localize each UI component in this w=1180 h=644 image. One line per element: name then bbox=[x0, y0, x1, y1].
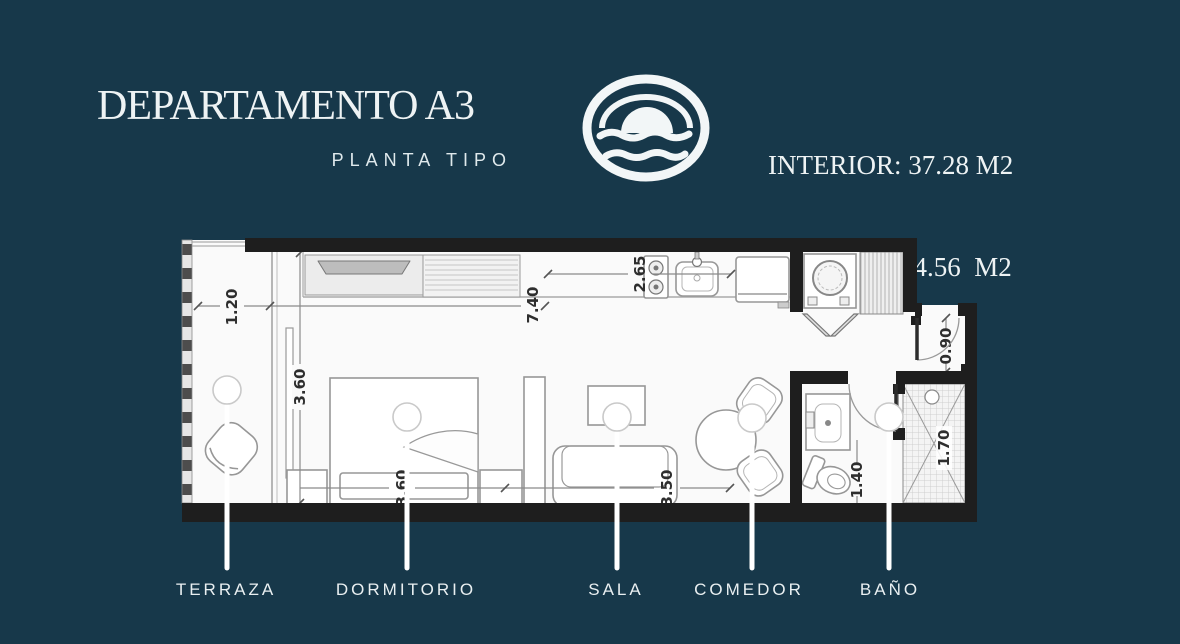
nightstand bbox=[480, 470, 522, 504]
room-label-comedor: COMEDOR bbox=[694, 580, 804, 600]
room-label-terraza: TERRAZA bbox=[176, 580, 276, 600]
room-label-sala: SALA bbox=[588, 580, 643, 600]
shelving bbox=[423, 255, 520, 297]
marker-comedor bbox=[738, 404, 766, 432]
bathroom-vanity bbox=[806, 394, 850, 450]
dim-bath-width: 1.40 bbox=[848, 461, 866, 498]
dim-shower-length: 1.70 bbox=[935, 429, 953, 466]
closet-shelf bbox=[318, 261, 410, 274]
dim-entry-door: 0.90 bbox=[937, 327, 955, 364]
room-label-bano: BAÑO bbox=[860, 580, 920, 600]
marker-dormitorio bbox=[393, 403, 421, 431]
shower-drain bbox=[925, 390, 939, 404]
balcony-railing bbox=[182, 240, 192, 503]
marker-bano bbox=[875, 403, 903, 431]
floor-plan: 1.20 7.40 2.65 3.60 3.60 3.50 0.90 1.40 … bbox=[0, 0, 1180, 644]
duct-shaft bbox=[860, 252, 903, 314]
room-label-dormitorio: DORMITORIO bbox=[336, 580, 476, 600]
fridge bbox=[736, 257, 789, 308]
dim-interior-length: 7.40 bbox=[524, 286, 542, 323]
marker-terraza bbox=[213, 376, 241, 404]
marker-sala bbox=[603, 403, 631, 431]
dim-room-depth: 3.60 bbox=[291, 368, 309, 405]
dim-terrace-width: 1.20 bbox=[223, 288, 241, 325]
slide: DEPARTAMENTO A3 PLANTA TIPO INTERIOR: 37… bbox=[0, 0, 1180, 644]
nightstand bbox=[287, 470, 327, 504]
shower bbox=[903, 384, 965, 503]
dim-sala-width: 3.50 bbox=[658, 469, 676, 506]
dim-kitchen-length: 2.65 bbox=[631, 255, 649, 292]
divider-panel bbox=[524, 377, 545, 506]
